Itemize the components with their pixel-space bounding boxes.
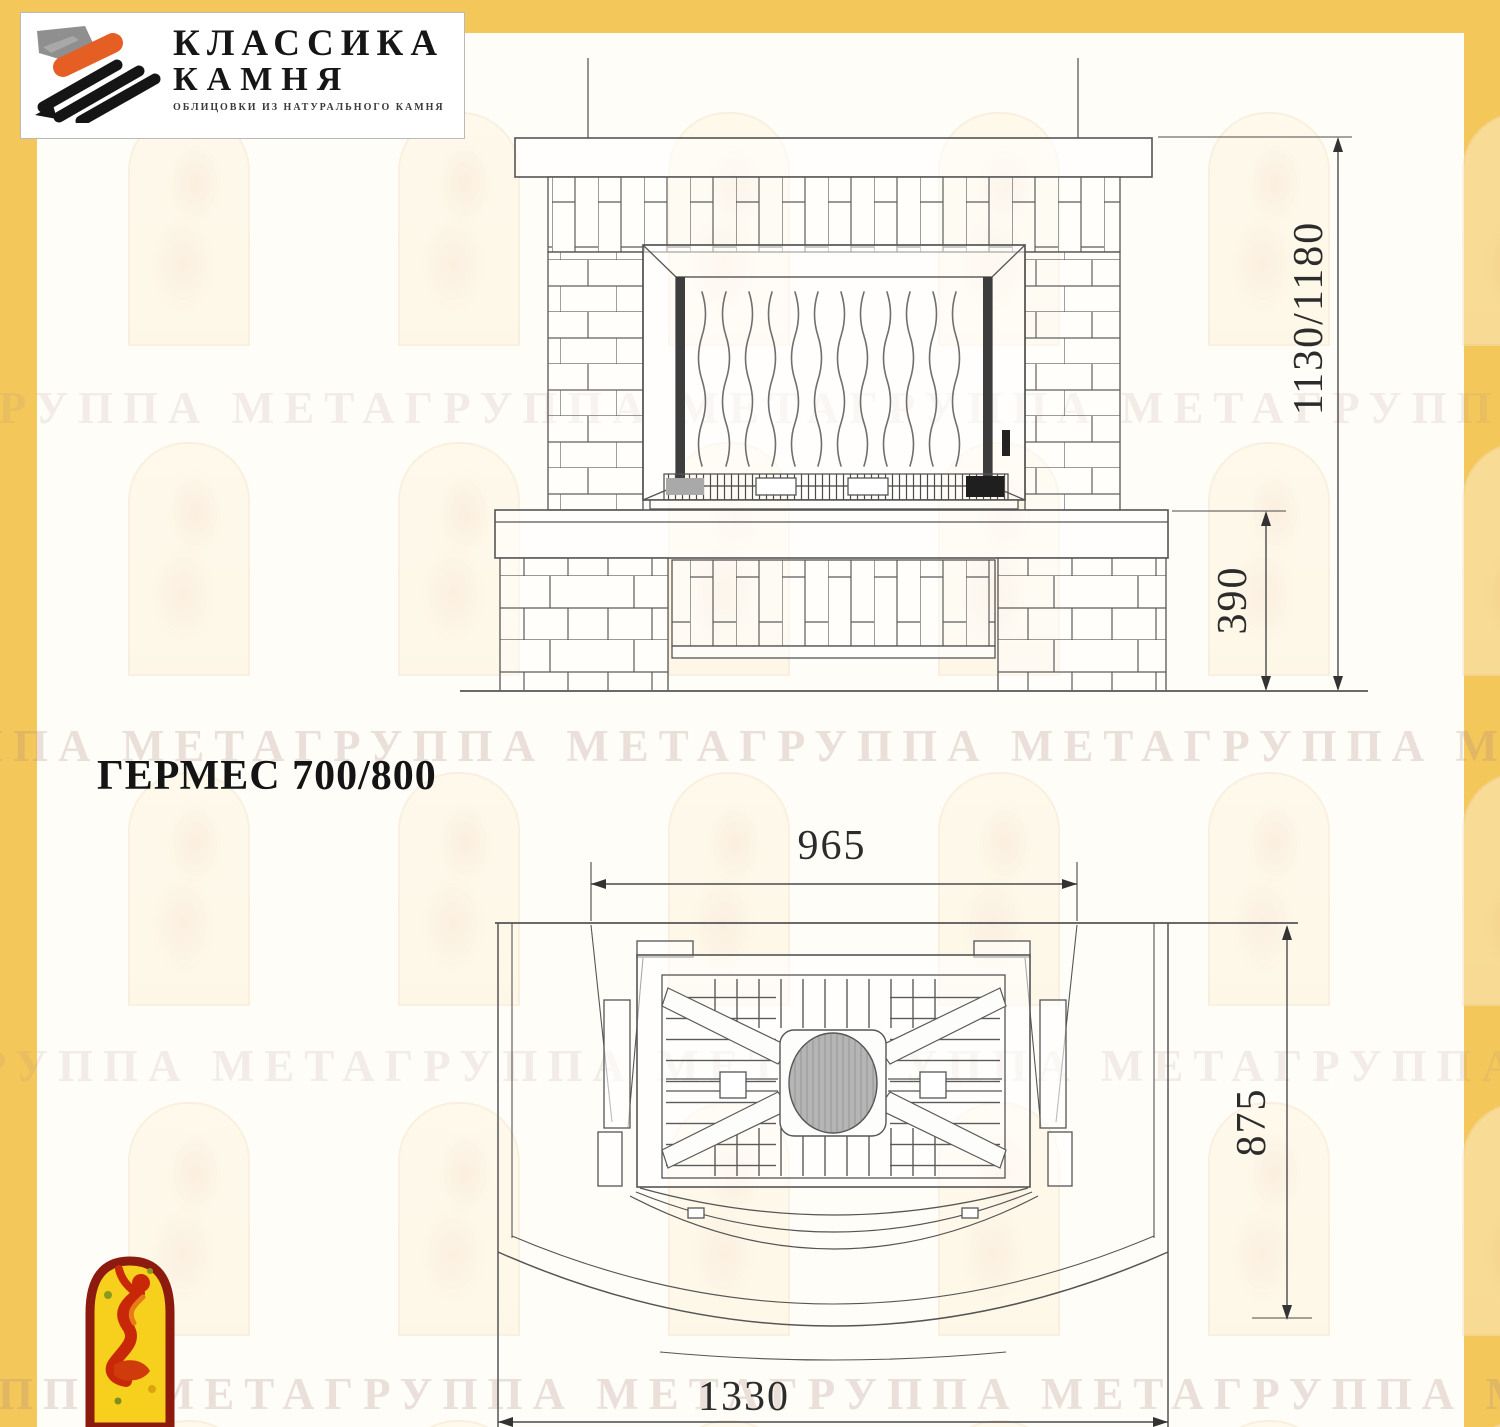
plan-view-drawing: [495, 862, 1312, 1427]
dim-label-overall-height: 1130/1180: [1285, 221, 1333, 416]
product-title: ГЕРМЕС 700/800: [97, 752, 437, 800]
dim-label-plinth-height: 390: [1209, 566, 1257, 635]
dim-label-depth: 875: [1228, 1088, 1276, 1157]
dim-label-insert-width: 965: [798, 822, 867, 870]
technical-drawing: [0, 0, 1500, 1427]
drawing-sheet: ГРУППА МЕТАГРУППА МЕТАГРУППА МЕТАГРУППА …: [0, 0, 1500, 1427]
dim-label-total-width: 1330: [698, 1373, 790, 1421]
firebird-brand-icon: [84, 1251, 176, 1427]
